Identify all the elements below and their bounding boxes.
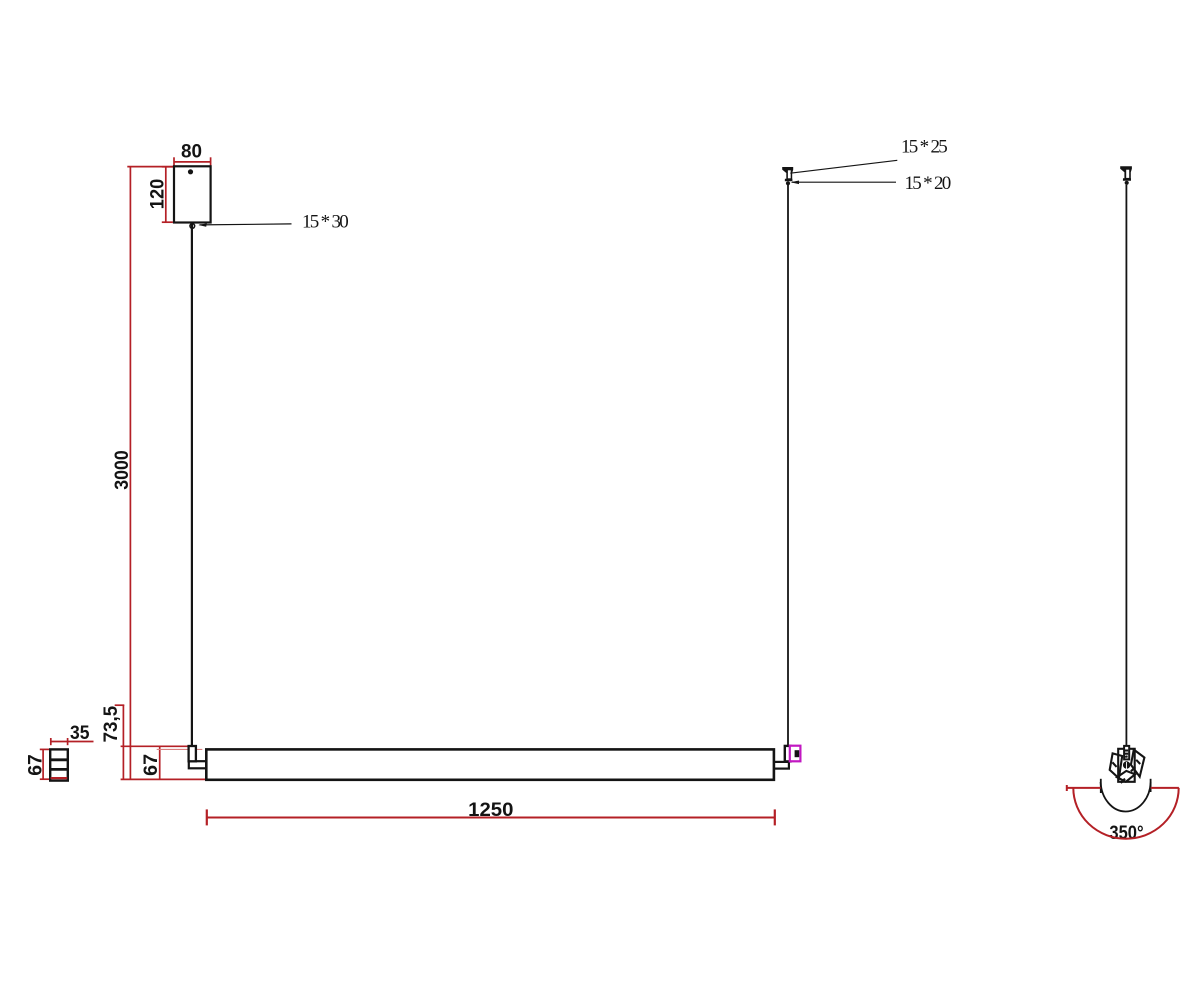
svg-text:67: 67 (25, 754, 47, 776)
svg-text:73,5: 73,5 (100, 706, 122, 743)
svg-text:1250: 1250 (468, 799, 513, 821)
svg-text:15 * 20: 15 * 20 (905, 173, 951, 194)
svg-text:15 * 30: 15 * 30 (302, 212, 348, 233)
svg-text:350°: 350° (1109, 822, 1143, 844)
svg-text:3000: 3000 (111, 450, 133, 490)
svg-text:80: 80 (181, 140, 202, 162)
svg-text:15 * 25: 15 * 25 (901, 136, 947, 157)
svg-text:120: 120 (147, 179, 169, 210)
svg-text:35: 35 (70, 722, 90, 744)
svg-text:67: 67 (140, 754, 162, 776)
